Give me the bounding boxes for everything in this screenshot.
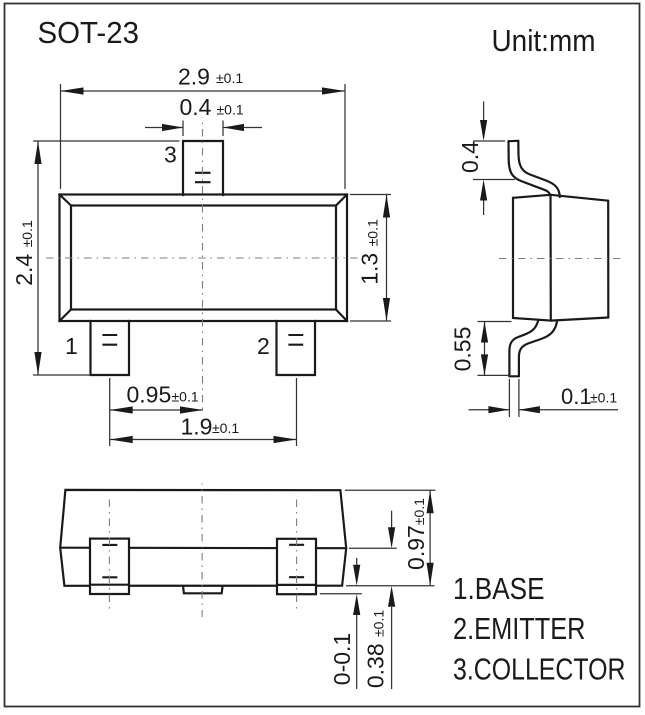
svg-text:0-0.1: 0-0.1 — [329, 633, 355, 685]
svg-text:3: 3 — [164, 142, 177, 168]
svg-text:2.EMITTER: 2.EMITTER — [453, 611, 586, 646]
svg-text:0.1: 0.1 — [561, 384, 592, 409]
svg-text:Unit:mm: Unit:mm — [492, 24, 596, 58]
svg-text:±0.1: ±0.1 — [217, 102, 244, 118]
svg-text:2: 2 — [257, 333, 270, 359]
svg-text:1.BASE: 1.BASE — [453, 571, 545, 606]
svg-text:0.4: 0.4 — [180, 94, 212, 120]
svg-text:±0.1: ±0.1 — [590, 390, 617, 406]
svg-text:0.4: 0.4 — [457, 141, 483, 173]
svg-text:±0.1: ±0.1 — [172, 389, 199, 405]
svg-text:0.95: 0.95 — [127, 382, 172, 408]
svg-text:±0.1: ±0.1 — [216, 70, 243, 86]
svg-text:2.9: 2.9 — [178, 64, 210, 90]
svg-text:1.9: 1.9 — [181, 414, 213, 440]
svg-text:1: 1 — [65, 333, 78, 359]
svg-text:SOT-23: SOT-23 — [38, 15, 140, 50]
svg-text:±0.1: ±0.1 — [212, 420, 239, 436]
svg-text:3.COLLECTOR: 3.COLLECTOR — [453, 652, 626, 687]
svg-text:0.55: 0.55 — [450, 327, 476, 372]
